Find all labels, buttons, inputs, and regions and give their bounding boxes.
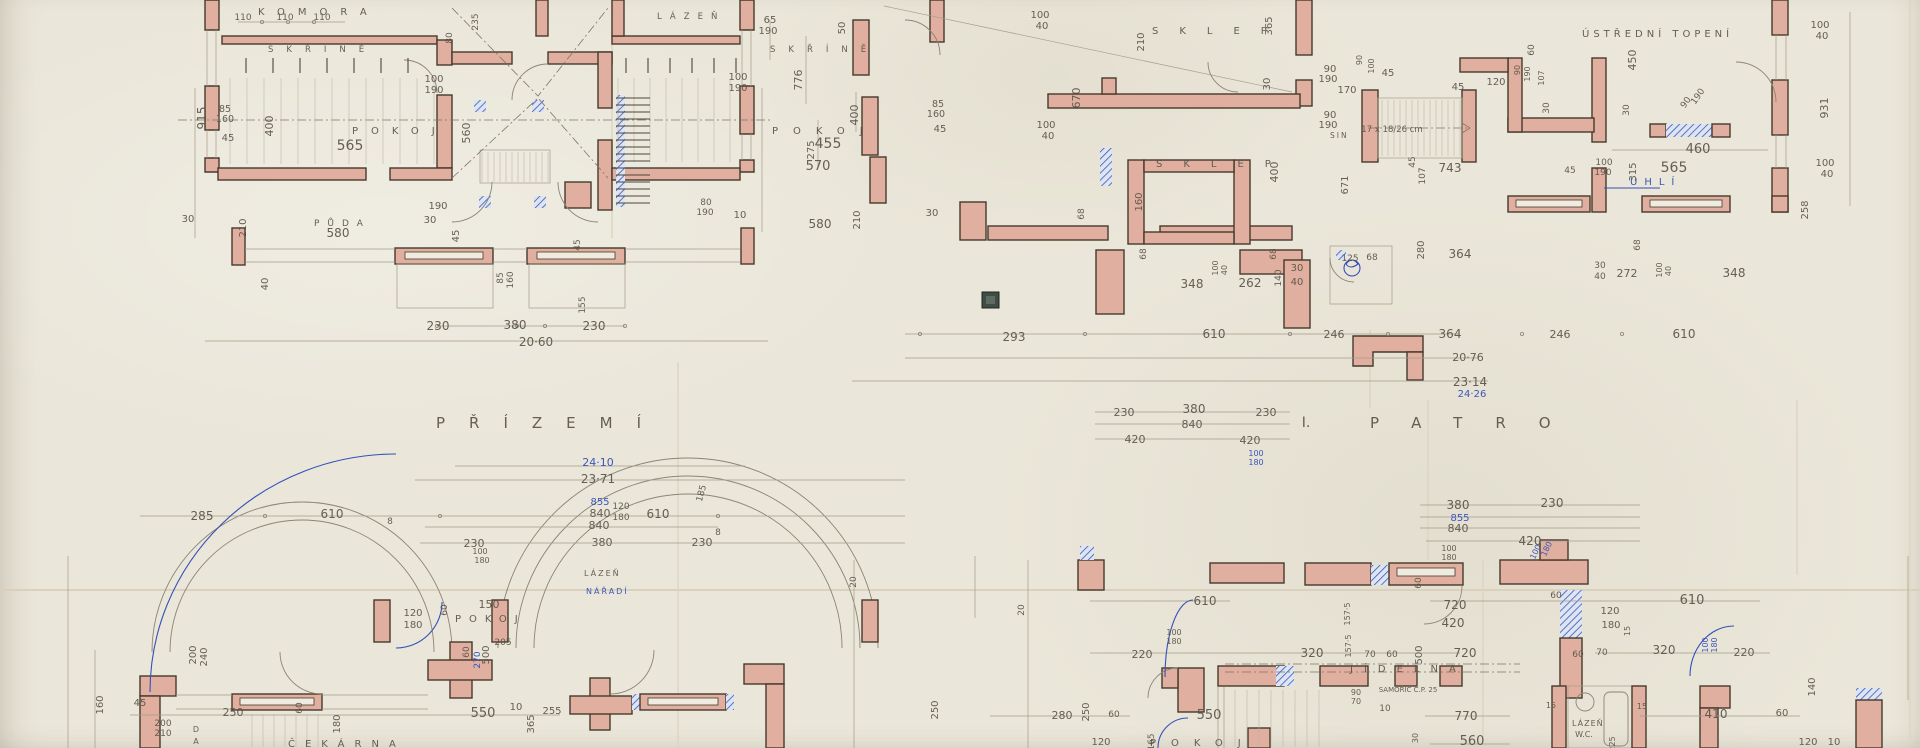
dimension-label: 720 xyxy=(1444,598,1467,612)
dimension-label: 30 xyxy=(926,208,939,219)
dimension-label: 40 xyxy=(1220,265,1229,275)
room-label: W.C. xyxy=(1575,730,1593,739)
dimension-label: 100 xyxy=(1595,158,1612,168)
dimension-label: 120 xyxy=(1798,737,1817,748)
dimension-label: 110 xyxy=(276,13,293,23)
room-label: POKOJ xyxy=(352,126,448,137)
dimension-label: 45 xyxy=(134,698,147,709)
room-label: ČEKÁRNA xyxy=(288,737,406,748)
dimension-label: 45 xyxy=(1382,68,1395,79)
dimension-label: 210 xyxy=(852,210,863,229)
dimension-label: 610 xyxy=(1203,327,1226,341)
dimension-label: 180 xyxy=(1601,620,1620,631)
dimension-label: 610 xyxy=(647,507,670,521)
room-label: I. xyxy=(1302,415,1311,431)
dimension-label: 20 xyxy=(1017,604,1027,616)
dimension-label: 420 xyxy=(1125,433,1146,446)
dimension-label: 250 xyxy=(1081,702,1092,721)
room-label: SKŘÍNĚ xyxy=(770,43,879,55)
dimension-label: 107 xyxy=(1537,70,1546,85)
dimension-label: 776 xyxy=(792,70,805,91)
dimension-label: 8 xyxy=(387,517,393,527)
dimension-label: 10 xyxy=(734,210,747,221)
dimension-label: 100 xyxy=(1030,10,1049,21)
dimension-label: 15 xyxy=(1546,701,1556,710)
dimension-label: 190 xyxy=(696,208,713,218)
dimension-label: 225 xyxy=(1608,736,1617,748)
dimension-label: 460 xyxy=(1686,142,1711,157)
dimension-label: 45 xyxy=(1564,166,1575,176)
dimension-label: 210 xyxy=(1136,32,1147,51)
dimension-label: 200 xyxy=(154,719,171,729)
dimension-label: 68 xyxy=(1139,248,1149,260)
dimension-label: 70 xyxy=(1364,650,1376,660)
dimension-label: 580 xyxy=(809,217,832,231)
dimension-label: 190 xyxy=(424,85,443,96)
dimension-label: 120 xyxy=(612,502,629,512)
dimension-label: 100 xyxy=(1211,260,1220,275)
dimension-label: 190 xyxy=(428,201,447,212)
dimension-label: 100 xyxy=(1655,262,1664,277)
dimension-label: 100 xyxy=(424,74,443,85)
dimension-label: 180 xyxy=(1248,458,1263,467)
dimension-label: 348 xyxy=(1181,277,1204,291)
room-label: PŘÍZEMÍ xyxy=(436,413,665,432)
chain-dot xyxy=(1520,332,1523,335)
dimension-label: 210 xyxy=(154,729,171,739)
dimension-label: 40 xyxy=(1036,21,1049,32)
dimension-label: 280 xyxy=(1052,709,1073,722)
dimension-label: 380 xyxy=(504,318,527,332)
dimension-label: 100 xyxy=(1701,637,1710,652)
room-label: ÚSTŘEDNÍ TOPENÍ xyxy=(1582,27,1733,40)
dimension-label: 580 xyxy=(327,226,350,240)
dimension-label: 60 xyxy=(1776,708,1789,719)
dimension-label: 420 xyxy=(1240,434,1261,447)
dimension-label: 670 xyxy=(1070,88,1083,109)
stamp-mark xyxy=(982,292,999,308)
dimension-label: 23·71 xyxy=(581,472,615,486)
dimension-label: 45 xyxy=(1408,156,1418,167)
dimension-label: 931 xyxy=(1818,98,1831,119)
dimension-label: 60 xyxy=(1527,44,1537,56)
dimension-label: 50 xyxy=(837,22,848,35)
dimension-label: 140 xyxy=(1274,269,1284,286)
dimension-label: 185 xyxy=(695,484,709,503)
dimension-label: 100 xyxy=(1367,58,1376,73)
dimension-label: 293 xyxy=(1003,330,1026,344)
dimension-label: 120 xyxy=(403,608,422,619)
dimension-label: 150 xyxy=(479,598,500,611)
dimension-label: 250 xyxy=(223,706,244,719)
dimension-label: 100 xyxy=(1248,449,1263,458)
dimension-label: 840 xyxy=(1182,418,1203,431)
dimension-label: 30 xyxy=(424,215,437,226)
dimension-label: 743 xyxy=(1439,161,1462,175)
dimension-label: 60 xyxy=(1550,591,1562,601)
dimension-label: 90 xyxy=(1355,55,1364,65)
dimension-label: 60 xyxy=(1414,577,1424,589)
dimension-label: 230 xyxy=(1256,406,1277,419)
plan-patro xyxy=(806,0,1850,381)
dimension-label: 100 xyxy=(1815,158,1834,169)
dimension-label: 915 xyxy=(195,107,209,130)
dimension-label: 60 xyxy=(295,702,305,714)
dimension-label: 380 xyxy=(592,536,613,549)
dimension-label: 190 xyxy=(758,26,777,37)
dimension-label: 45 xyxy=(934,124,947,135)
dimension-label: 230 xyxy=(427,319,450,333)
dimension-label: 40 xyxy=(1594,272,1606,282)
dimension-label: 45 xyxy=(573,239,583,250)
dimension-label: 565 xyxy=(337,138,364,154)
dimension-label: 200 xyxy=(188,645,199,664)
dimension-label: 180 xyxy=(1710,637,1719,652)
dimension-label: 180 xyxy=(1166,637,1181,646)
dimension-label: 100 xyxy=(1810,20,1829,31)
dimension-label: 30 xyxy=(1262,78,1273,91)
blueprint-canvas: PŘÍZEMÍI.PATROKOMORA110110110SKŘÍNĚ91585… xyxy=(0,0,1920,748)
dimension-label: 235 xyxy=(471,13,481,30)
dimension-label: 100 xyxy=(1036,120,1055,131)
dimension-label: 110 xyxy=(234,13,251,23)
dimension-label: 450 xyxy=(1626,50,1639,71)
dimension-label: 348 xyxy=(1723,266,1746,280)
room-label: NÁŘADÍ xyxy=(586,585,629,596)
dimension-label: 400 xyxy=(263,116,276,137)
dimension-label: 110 xyxy=(313,13,330,23)
dimension-label: 90 xyxy=(1351,688,1361,697)
dimension-label: 500 xyxy=(481,645,492,664)
dimension-label: 272 xyxy=(1617,267,1638,280)
dimension-label: 40 xyxy=(260,278,271,291)
dimension-label: 40 xyxy=(1816,31,1829,42)
dimension-label: 565 xyxy=(1661,160,1688,176)
dimension-label: 30 xyxy=(182,214,195,225)
dimension-label: 230 xyxy=(1541,496,1564,510)
dimension-label: 246 xyxy=(1324,328,1345,341)
dimension-label: 155 xyxy=(578,296,588,313)
dimension-label: 840 xyxy=(1448,522,1469,535)
dimension-label: 258 xyxy=(1800,200,1811,219)
dimension-label: 15 xyxy=(1637,702,1647,711)
dimension-label: 230 xyxy=(692,536,713,549)
room-label: SIN xyxy=(1330,131,1349,140)
dimension-label: 365 xyxy=(526,714,537,733)
room-label: A xyxy=(193,737,199,746)
room-label: LÁZEŇ xyxy=(657,10,725,22)
dimension-label: 255 xyxy=(542,706,561,717)
dimension-label: 160 xyxy=(927,109,945,120)
dimension-label: 68 xyxy=(1269,248,1279,260)
dimension-label: 170 xyxy=(1337,85,1356,96)
dimension-label: 120 xyxy=(1600,606,1619,617)
room-label: POKOJ xyxy=(455,614,526,625)
dimension-label: 610 xyxy=(1194,594,1217,608)
dimension-label: 24·10 xyxy=(582,456,614,469)
room-label: POKOJ xyxy=(1150,738,1256,748)
dimension-label: 100 xyxy=(728,72,747,83)
dimension-label: 60 xyxy=(462,646,472,658)
dimension-label: 320 xyxy=(1653,643,1676,657)
room-label: LÁZEŇ xyxy=(584,567,621,578)
dimension-label: 250 xyxy=(930,700,941,719)
dimension-label: 10 xyxy=(510,702,523,713)
dimension-label: 24·26 xyxy=(1458,389,1487,400)
dimension-label: 60 xyxy=(1108,710,1120,720)
dimension-label: 100 xyxy=(472,547,487,556)
dimension-label: 550 xyxy=(1197,708,1222,723)
dimension-label: 220 xyxy=(1132,648,1153,661)
dimension-label: 275 xyxy=(806,140,817,159)
dimension-label: 100 xyxy=(1166,628,1181,637)
dimension-label: 455 xyxy=(815,136,842,152)
dimension-label: 160 xyxy=(216,114,234,125)
dimension-label: 45 xyxy=(1452,82,1465,93)
dimension-label: 20·60 xyxy=(519,335,553,349)
plan-lower-right xyxy=(854,412,1908,748)
dimension-label: 190 xyxy=(1689,87,1707,107)
dimension-label: 100 xyxy=(1441,544,1456,553)
dimension-label: 140 xyxy=(1807,677,1818,696)
dimension-label: 30 xyxy=(1594,261,1606,271)
dimension-label: 70 xyxy=(1596,648,1608,658)
room-label: SAMOŘIČ Č.P. 25 xyxy=(1379,685,1438,694)
dimension-label: 160 xyxy=(506,271,516,288)
dimension-label: 262 xyxy=(1239,276,1262,290)
dimension-label: 23·14 xyxy=(1453,375,1487,389)
dimension-label: 840 xyxy=(589,519,610,532)
dimension-label: 230 xyxy=(1114,406,1135,419)
dimension-label: 364 xyxy=(1449,247,1472,261)
dimension-label: 125 xyxy=(1341,254,1358,264)
dimension-label: 60 xyxy=(1386,650,1398,660)
room-label: D xyxy=(193,725,199,734)
dimension-label: 65 xyxy=(764,15,777,26)
dimension-label: 45 xyxy=(451,230,462,243)
dimension-label: 205 xyxy=(494,638,511,648)
dimension-label: 40 xyxy=(1042,131,1055,142)
dimension-label: 400 xyxy=(848,105,861,126)
dimension-label: 190 xyxy=(1594,168,1611,178)
dimension-label: 10 xyxy=(1379,704,1391,714)
dimension-label: 671 xyxy=(1340,175,1351,194)
dimension-label: 120 xyxy=(1091,737,1110,748)
dimension-label: 770 xyxy=(1455,709,1478,723)
dimension-label: 85 xyxy=(496,272,506,283)
dimension-label: 15 xyxy=(1623,626,1632,636)
dimension-label: 107 xyxy=(1418,167,1428,184)
dimension-label: 610 xyxy=(1680,593,1705,608)
room-label: JÍDELNA xyxy=(1349,662,1467,675)
dimension-label: 285 xyxy=(191,509,214,523)
paper-creases xyxy=(0,0,1920,748)
dimension-label: 610 xyxy=(1673,327,1696,341)
dimension-label: 180 xyxy=(332,714,343,733)
dimension-label: 30 xyxy=(1542,102,1552,114)
room-label: SKŘÍNĚ xyxy=(268,43,377,55)
dimension-label: 30 xyxy=(1291,263,1304,274)
dimension-label: 210 xyxy=(238,218,249,237)
dimension-label: 380 xyxy=(1183,402,1206,416)
dimension-label: 240 xyxy=(199,647,210,666)
dimension-label: 68 xyxy=(1077,208,1087,220)
dimension-label: 60 xyxy=(1572,650,1584,660)
dimension-label: 410 xyxy=(1705,707,1728,721)
dimension-label: 10 xyxy=(1828,737,1841,748)
dimension-label: 190 xyxy=(1523,66,1532,81)
dimension-label: 180 xyxy=(474,556,489,565)
dimension-label: 90 xyxy=(1513,65,1522,75)
blue-pen-lines xyxy=(150,188,1734,748)
dimension-label: 180 xyxy=(403,620,422,631)
dimension-label: 550 xyxy=(471,706,496,721)
dimension-label: 320 xyxy=(1301,646,1324,660)
dimension-label: 180 xyxy=(612,513,629,523)
dimension-label: 246 xyxy=(1550,328,1571,341)
dimension-label: 220 xyxy=(1734,646,1755,659)
room-label: LÁZEŇ xyxy=(1572,717,1604,728)
dimension-label: 560 xyxy=(1460,734,1485,748)
dimension-label: 160 xyxy=(95,695,106,714)
dimension-label: 30 xyxy=(1411,733,1420,743)
chain-dot xyxy=(1620,332,1623,335)
dimension-label: 70 xyxy=(1351,697,1361,706)
dimension-label: 45 xyxy=(222,133,235,144)
dimension-label: 380 xyxy=(1447,498,1470,512)
dimension-label: 68 xyxy=(1633,239,1643,251)
dimension-label: 80 xyxy=(445,32,455,44)
dimension-label: 68 xyxy=(1366,253,1378,263)
dimension-label: 190 xyxy=(728,83,747,94)
dimension-label: 160 xyxy=(1134,192,1145,211)
dimension-label: 280 xyxy=(1416,240,1427,259)
dimension-label: 190 xyxy=(1318,120,1337,131)
dimension-label: 157·5 xyxy=(1344,635,1353,658)
dimension-label: 40 xyxy=(1664,266,1673,276)
dimension-label: 610 xyxy=(321,507,344,521)
dimension-label: 120 xyxy=(1486,77,1505,88)
room-label: PATRO xyxy=(1370,414,1584,432)
dimension-label: 190 xyxy=(1318,74,1337,85)
dimension-label: 315 xyxy=(1628,162,1639,181)
dimension-label: 420 xyxy=(1442,616,1465,630)
dimension-label: 17 x 18/26 cm xyxy=(1361,125,1422,135)
dimension-label: 30 xyxy=(1622,104,1632,116)
dimension-label: 20 xyxy=(849,576,859,588)
dimension-label: 570 xyxy=(806,159,831,174)
dimension-label: 365 xyxy=(1264,16,1275,35)
dimension-label: 60 xyxy=(440,604,450,616)
dimension-label: 720 xyxy=(1454,646,1477,660)
dimension-label: 400 xyxy=(1268,162,1281,183)
dimension-label: 364 xyxy=(1439,327,1462,341)
dimension-label: 180 xyxy=(1441,553,1456,562)
dimension-label: 80 xyxy=(700,198,712,208)
dimension-label: 500 xyxy=(1414,645,1425,664)
dimension-label: 40 xyxy=(1821,169,1834,180)
dimension-label: 8 xyxy=(715,528,721,538)
dimension-label: 20·76 xyxy=(1452,351,1484,364)
dimension-label: 230 xyxy=(583,319,606,333)
dimension-label: 157·5 xyxy=(1343,603,1352,626)
dimension-label: 560 xyxy=(460,123,473,144)
blueprint-sheet: PŘÍZEMÍI.PATROKOMORA110110110SKŘÍNĚ91585… xyxy=(0,0,1920,748)
dimension-label: 40 xyxy=(1291,277,1304,288)
